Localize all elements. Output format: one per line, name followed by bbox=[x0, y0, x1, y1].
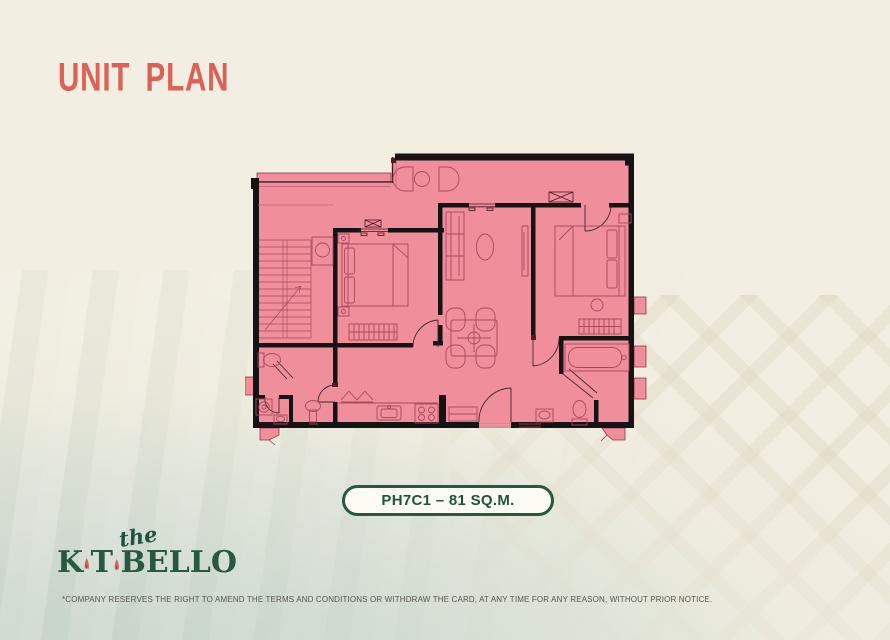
logo-letters-bello: BELLO bbox=[120, 548, 237, 578]
logo-letter-k: K bbox=[57, 548, 83, 578]
sail-icon bbox=[114, 552, 120, 577]
page-title: UNIT PLAN bbox=[58, 56, 229, 101]
floor-plan bbox=[245, 148, 655, 448]
sail-icon bbox=[84, 550, 90, 577]
unit-label-badge: PH7C1 – 81 SQ.M. bbox=[342, 485, 554, 516]
logo-letter-t: T bbox=[91, 548, 113, 578]
footer-disclaimer: *COMPANY RESERVES THE RIGHT TO AMEND THE… bbox=[62, 595, 592, 604]
floor-plan-area bbox=[253, 157, 634, 428]
balcony-edge bbox=[253, 157, 396, 187]
logo-wordmark: K T BELLO bbox=[57, 548, 237, 578]
brand-logo: the K T BELLO bbox=[57, 548, 237, 592]
